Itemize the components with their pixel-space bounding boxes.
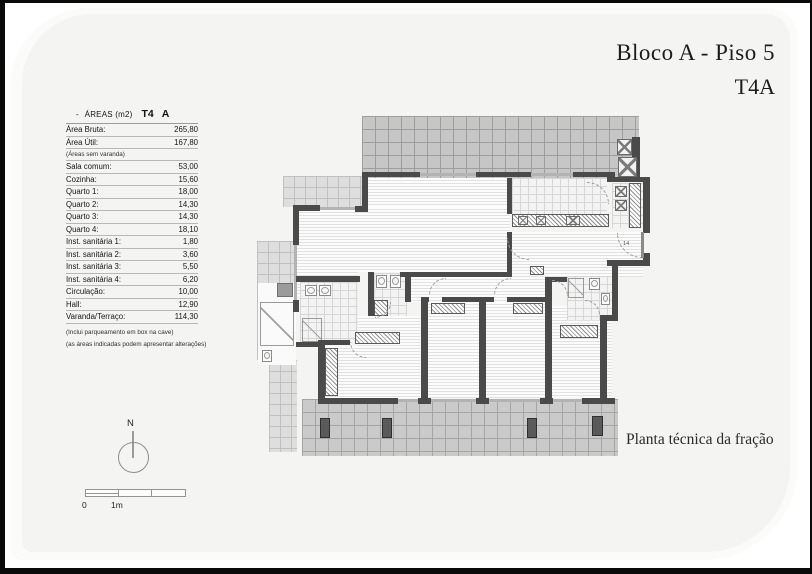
drawing-title-block: Bloco A - Piso 5 T4A <box>440 40 775 100</box>
areas-table-row: Inst. sanitária 1:1,80 <box>66 236 198 249</box>
areas-table-footnote: (Inclui parqueamento em box na cave) <box>66 329 198 336</box>
areas-table-footnote: (as áreas indicadas podem apresentar alt… <box>66 341 198 348</box>
terrace-upper-left <box>283 176 363 207</box>
area-row-value: 12,90 <box>178 300 198 309</box>
areas-table: - ÁREAS (m2) T4 A Área Bruta:265,80Área … <box>66 106 198 348</box>
area-row-value: 10,00 <box>178 287 198 296</box>
areas-table-row: Sala comum:53,00 <box>66 161 198 174</box>
area-row-label: Varanda/Terraço: <box>66 312 125 321</box>
areas-table-rows: Área Bruta:265,80Área Útil:167,80(Áreas … <box>66 124 198 324</box>
terrace-left-lower <box>269 360 297 452</box>
area-row-label: Inst. sanitária 3: <box>66 262 121 271</box>
area-row-value: 265,80 <box>174 125 198 134</box>
area-row-label: Inst. sanitária 2: <box>66 250 121 259</box>
washer-icon <box>615 200 627 211</box>
scale-zero-label: 0 <box>82 500 87 510</box>
page-subtitle: T4A <box>440 74 775 100</box>
areas-table-row: Cozinha:15,60 <box>66 174 198 187</box>
areas-header-type: T4 <box>141 108 153 120</box>
areas-table-row: Quarto 4:18,10 <box>66 224 198 237</box>
terrace-top <box>362 116 639 178</box>
entrance-door-label: 14 <box>623 240 629 246</box>
stove-icon <box>566 216 580 225</box>
area-row-label: Quarto 2: <box>66 200 99 209</box>
area-row-value: 167,80 <box>174 138 198 147</box>
wardrobe <box>560 325 598 338</box>
pantry-shelf <box>629 183 641 228</box>
floor-plan: 14 <box>255 110 653 462</box>
area-row-label: Quarto 3: <box>66 212 99 221</box>
areas-table-row: (Áreas sem varanda) <box>66 149 198 161</box>
area-row-value: 14,30 <box>178 212 198 221</box>
area-row-label: Inst. sanitária 4: <box>66 275 121 284</box>
area-row-value: 14,30 <box>178 200 198 209</box>
area-row-label: Inst. sanitária 1: <box>66 237 121 246</box>
elevator-icon <box>618 157 637 177</box>
page-title: Bloco A - Piso 5 <box>440 40 775 66</box>
area-row-label: Área Útil: <box>66 138 98 147</box>
living-room-floor <box>296 207 510 272</box>
area-row-value: 18,00 <box>178 187 198 196</box>
appliance-icon <box>518 216 528 225</box>
area-row-label: Sala comum: <box>66 162 112 171</box>
shower <box>568 278 584 298</box>
areas-table-row: Inst. sanitária 2:3,60 <box>66 249 198 262</box>
wardrobe <box>431 303 465 314</box>
bathtub <box>260 302 294 346</box>
bedroom3-floor <box>486 302 545 398</box>
area-row-label: Quarto 1: <box>66 187 99 196</box>
bedroom2-floor <box>428 302 479 398</box>
areas-table-row: Quarto 2:14,30 <box>66 199 198 212</box>
column <box>592 416 603 436</box>
area-row-value: 6,20 <box>183 275 198 284</box>
area-row-value: 3,60 <box>183 250 198 259</box>
scale-bar-segment <box>152 490 185 496</box>
area-row-label: (Áreas sem varanda) <box>66 151 125 158</box>
areas-header-block: A <box>162 108 170 120</box>
wardrobe <box>513 303 543 314</box>
area-row-value: 53,00 <box>178 162 198 171</box>
area-row-value: 18,10 <box>178 225 198 234</box>
scale-bar-segment <box>119 490 152 496</box>
areas-header-dash: - <box>76 110 79 119</box>
areas-table-footnotes: (Inclui parqueamento em box na cave)(as … <box>66 329 198 348</box>
areas-table-header: - ÁREAS (m2) T4 A <box>66 106 198 124</box>
column <box>320 418 330 438</box>
area-row-label: Área Bruta: <box>66 125 105 134</box>
wardrobe <box>325 348 338 396</box>
areas-table-row: Quarto 1:18,00 <box>66 186 198 199</box>
area-row-value: 5,50 <box>183 262 198 271</box>
area-row-label: Hall: <box>66 300 82 309</box>
bedroom1-floor <box>358 316 420 398</box>
areas-table-row: Área Útil:167,80 <box>66 137 198 150</box>
washer-icon <box>615 186 627 197</box>
compass-icon <box>118 442 149 473</box>
area-row-value: 1,80 <box>183 237 198 246</box>
terrace-bottom <box>302 399 618 456</box>
areas-table-row: Circulação:10,00 <box>66 286 198 299</box>
area-row-label: Quarto 4: <box>66 225 99 234</box>
area-row-value: 114,30 <box>175 312 198 321</box>
areas-table-row: Varanda/Terraço:114,30 <box>66 311 198 324</box>
scale-bar-segment <box>86 490 119 496</box>
area-row-label: Circulação: <box>66 287 105 296</box>
area-row-value: 15,60 <box>178 175 198 184</box>
areas-table-row: Inst. sanitária 4:6,20 <box>66 274 198 287</box>
scale-bar <box>85 489 186 497</box>
shower <box>302 318 322 342</box>
area-row-label: Cozinha: <box>66 175 97 184</box>
areas-table-row: Área Bruta:265,80 <box>66 124 198 137</box>
appliance-icon <box>536 216 546 225</box>
column <box>382 418 392 438</box>
column-block <box>277 283 293 297</box>
column <box>527 418 537 438</box>
scale-one-meter-label: 1m <box>111 500 123 510</box>
compass-north-label: N <box>127 418 134 429</box>
areas-table-row: Inst. sanitária 3:5,50 <box>66 261 198 274</box>
elevator-icon <box>617 139 632 155</box>
areas-header-label: ÁREAS (m2) <box>85 110 133 119</box>
areas-table-row: Quarto 3:14,30 <box>66 211 198 224</box>
wardrobe <box>530 266 544 275</box>
areas-table-row: Hall:12,90 <box>66 299 198 312</box>
